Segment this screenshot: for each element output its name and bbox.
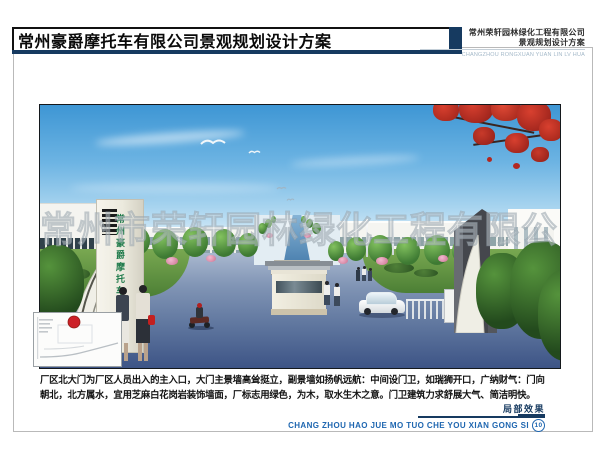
bird-icon xyxy=(276,185,287,191)
flowering-shrub xyxy=(166,257,178,265)
footer-pinyin: CHANG ZHOU HAO JUE MO TUO CHE YOU XIAN G… xyxy=(288,421,529,430)
red-maple-branch xyxy=(415,105,560,187)
pedestrian xyxy=(362,266,367,281)
red-bag xyxy=(148,315,155,325)
page-number-badge: 10 xyxy=(532,419,545,432)
description-paragraph: 厂区北大门为厂区人员出入的主入口，大门主景墙高耸挺立，副景墙如扬帆远航：中间设门… xyxy=(40,372,556,402)
footer-rule-thin xyxy=(418,416,518,418)
booth-window xyxy=(276,281,322,293)
tree-large-left xyxy=(39,245,84,321)
flowering-shrub xyxy=(338,257,348,264)
description-line: 厂区北大门为厂区人员出入的主入口，大门主景墙高耸挺立，副景墙如扬帆远航：中间设门… xyxy=(40,372,556,387)
title-underline xyxy=(12,50,462,54)
footer-pinyin-row: CHANG ZHOU HAO JUE MO TUO CHE YOU XIAN G… xyxy=(245,419,545,432)
car-wheel xyxy=(391,308,398,315)
guard-booth xyxy=(272,261,326,315)
pedestrian-foreground xyxy=(133,285,155,365)
firm-pinyin: CHANGZHOU RONGXUAN YUAN LIN LV HUA xyxy=(420,52,585,58)
firm-subtitle: 景观规划设计方案 xyxy=(420,38,585,48)
site-plan-drawing xyxy=(34,313,121,366)
site-plan-inset xyxy=(33,312,122,367)
pedestrian xyxy=(324,281,331,305)
bird-icon xyxy=(248,149,261,155)
stamp-dot xyxy=(68,316,80,328)
pedestrian xyxy=(356,267,361,281)
bird-icon xyxy=(200,137,226,147)
firm-name: 常州荣轩园林绿化工程有限公司 xyxy=(420,28,585,38)
booth-base xyxy=(271,309,327,315)
motorcycle-rider xyxy=(186,303,216,331)
watermark: 常州市荣轩园林绿化工程有限公司 xyxy=(40,201,560,253)
car-cabin xyxy=(366,292,397,305)
car-wheel xyxy=(364,308,371,315)
sheet-title: 常州豪爵摩托车有限公司景观规划设计方案 xyxy=(14,28,332,52)
cloud xyxy=(70,183,280,193)
firm-divider xyxy=(420,49,585,50)
pedestrian xyxy=(368,268,373,281)
description-line: 朝北，北方属水，宜用芝麻白花岗岩装饰墙面，厂标志用绿色，为木，取水生木之意。门卫… xyxy=(40,387,556,402)
gate-barrier xyxy=(406,299,446,319)
footer-rule-thick xyxy=(518,414,545,418)
shrub xyxy=(414,269,438,277)
flowering-shrub xyxy=(376,257,388,265)
pedestrian xyxy=(334,283,341,306)
white-car xyxy=(359,291,405,318)
footer-rule xyxy=(418,414,545,418)
flowering-shrub xyxy=(206,255,216,262)
design-firm-block: 常州荣轩园林绿化工程有限公司 景观规划设计方案 CHANGZHOU RONGXU… xyxy=(420,28,585,58)
